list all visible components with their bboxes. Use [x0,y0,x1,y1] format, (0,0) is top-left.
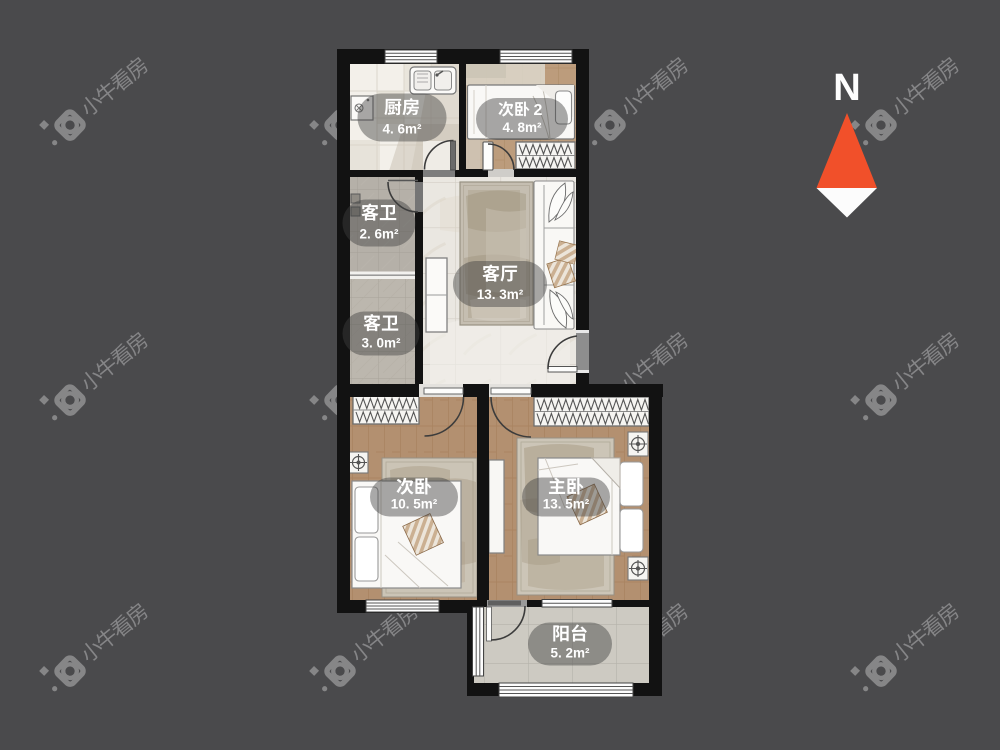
svg-text:N: N [833,67,860,109]
svg-text:2: 2 [534,102,543,119]
svg-text:13. 5m²: 13. 5m² [543,497,590,512]
svg-text:4. 8m²: 4. 8m² [502,120,542,135]
svg-text:4. 6m²: 4. 6m² [382,122,422,137]
svg-text:10. 5m²: 10. 5m² [391,497,438,512]
svg-text:2. 6m²: 2. 6m² [359,227,399,242]
svg-text:5. 2m²: 5. 2m² [550,646,590,661]
svg-text:13. 3m²: 13. 3m² [477,287,524,302]
svg-text:3. 0m²: 3. 0m² [361,336,401,351]
